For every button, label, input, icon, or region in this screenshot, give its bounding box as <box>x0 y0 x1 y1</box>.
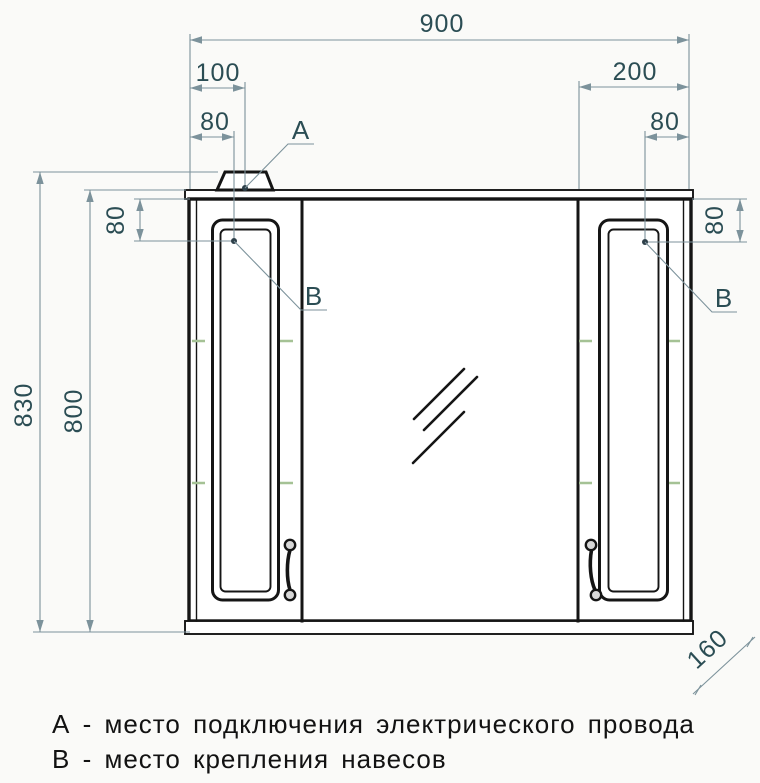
drawing-canvas: 900 100 80 200 80 830 800 <box>0 0 760 783</box>
marker-b-right-label: В <box>715 283 733 313</box>
dim-hinge-top-inset-right-value: 80 <box>701 205 729 235</box>
bottom-strip <box>185 621 693 634</box>
dim-cabinet-height: 800 <box>60 190 186 632</box>
dim-cabinet-height-value: 800 <box>60 389 88 434</box>
right-door-handle-top <box>586 540 596 550</box>
dim-hinge-inset-left-value: 80 <box>200 108 230 136</box>
marker-a-label: А <box>292 115 310 145</box>
dim-hinge-top-inset-left-value: 80 <box>102 205 130 235</box>
dim-overall-height-value: 830 <box>10 383 38 428</box>
marker-power-point: А <box>242 115 314 191</box>
mirror-cabinet-technical-drawing: 900 100 80 200 80 830 800 <box>0 0 760 783</box>
left-door-handle-top <box>285 540 295 550</box>
dim-power-offset-value: 100 <box>196 59 241 87</box>
right-door-handle-bottom <box>591 590 601 600</box>
legend-line-a: А - место подключения электрического про… <box>52 709 695 739</box>
dim-right-section-width-value: 200 <box>613 58 658 86</box>
right-door-outer-panel <box>600 220 668 600</box>
legend-line-b: В - место крепления навесов <box>52 744 447 774</box>
left-door-handle-bottom <box>285 590 295 600</box>
dim-overall-width-value: 900 <box>420 10 465 38</box>
marker-b-left-label: В <box>305 281 323 311</box>
dim-hinge-inset-right-value: 80 <box>650 108 680 136</box>
dim-overall-width: 900 <box>190 10 689 189</box>
legend: А - место подключения электрического про… <box>52 709 695 774</box>
